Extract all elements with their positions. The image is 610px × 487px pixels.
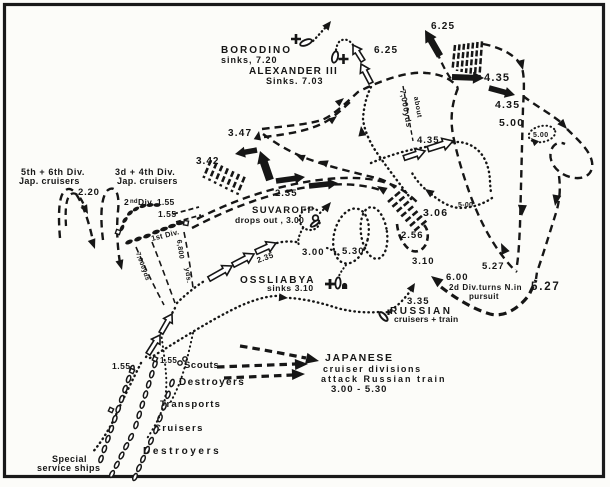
svg-text:4.35: 4.35 [484,72,510,84]
svg-text:7,000yds: 7,000yds [134,251,151,282]
svg-text:5-00: 5-00 [458,202,473,209]
svg-text:Destroyers: Destroyers [143,446,221,457]
svg-text:5.30: 5.30 [342,246,365,257]
svg-text:Cruisers: Cruisers [154,423,204,434]
svg-text:5.00: 5.00 [533,132,549,139]
svg-text:3.06: 3.06 [423,207,448,219]
svg-text:cruisers + train: cruisers + train [394,314,458,324]
svg-text:pursuit: pursuit [469,292,499,301]
svg-text:Destroyers: Destroyers [179,377,245,388]
svg-text:drops out , 3.00: drops out , 3.00 [235,215,304,225]
svg-text:Jap. cruisers: Jap. cruisers [19,176,80,186]
svg-text:2.20: 2.20 [78,187,100,198]
svg-text:5.27: 5.27 [482,261,505,272]
svg-text:Scouts: Scouts [184,360,219,371]
svg-text:about: about [412,96,423,119]
svg-text:3.00: 3.00 [302,247,325,258]
svg-text:1.55: 1.55 [160,356,177,365]
svg-text:sinks 3.10: sinks 3.10 [267,283,314,293]
svg-text:Sinks. 7.03: Sinks. 7.03 [266,76,324,86]
svg-text:service ships: service ships [37,463,101,473]
svg-text:2.35: 2.35 [275,188,298,199]
svg-text:2d Div.turns N.in: 2d Div.turns N.in [449,283,522,292]
svg-text:Transports: Transports [160,399,221,410]
svg-text:yds.: yds. [183,267,192,283]
svg-text:cruiser divisions: cruiser divisions [323,364,422,374]
svg-text:3.10: 3.10 [412,256,435,267]
svg-text:5.27: 5.27 [531,281,561,293]
svg-text:JAPANESE: JAPANESE [325,352,394,364]
svg-text:6.00: 6.00 [446,272,469,283]
svg-text:6,800: 6,800 [175,239,185,259]
svg-text:attack Russian train: attack Russian train [321,374,447,384]
svg-text:6.25: 6.25 [374,45,398,56]
svg-text:7,000yds: 7,000yds [398,89,414,129]
svg-text:1.55: 1.55 [112,361,131,371]
svg-text:4.35: 4.35 [417,135,440,146]
svg-text:3.47: 3.47 [228,128,252,139]
svg-text:nd: nd [130,199,138,205]
svg-text:2: 2 [124,197,129,207]
svg-text:5.00: 5.00 [499,117,524,129]
svg-text:Jap. cruisers: Jap. cruisers [117,176,178,186]
svg-text:4.35: 4.35 [495,99,520,111]
svg-text:6.25: 6.25 [431,21,455,32]
svg-text:sinks, 7.20: sinks, 7.20 [221,55,278,65]
svg-text:3.00 - 5.30: 3.00 - 5.30 [331,384,387,395]
svg-text:2.56: 2.56 [401,230,424,241]
